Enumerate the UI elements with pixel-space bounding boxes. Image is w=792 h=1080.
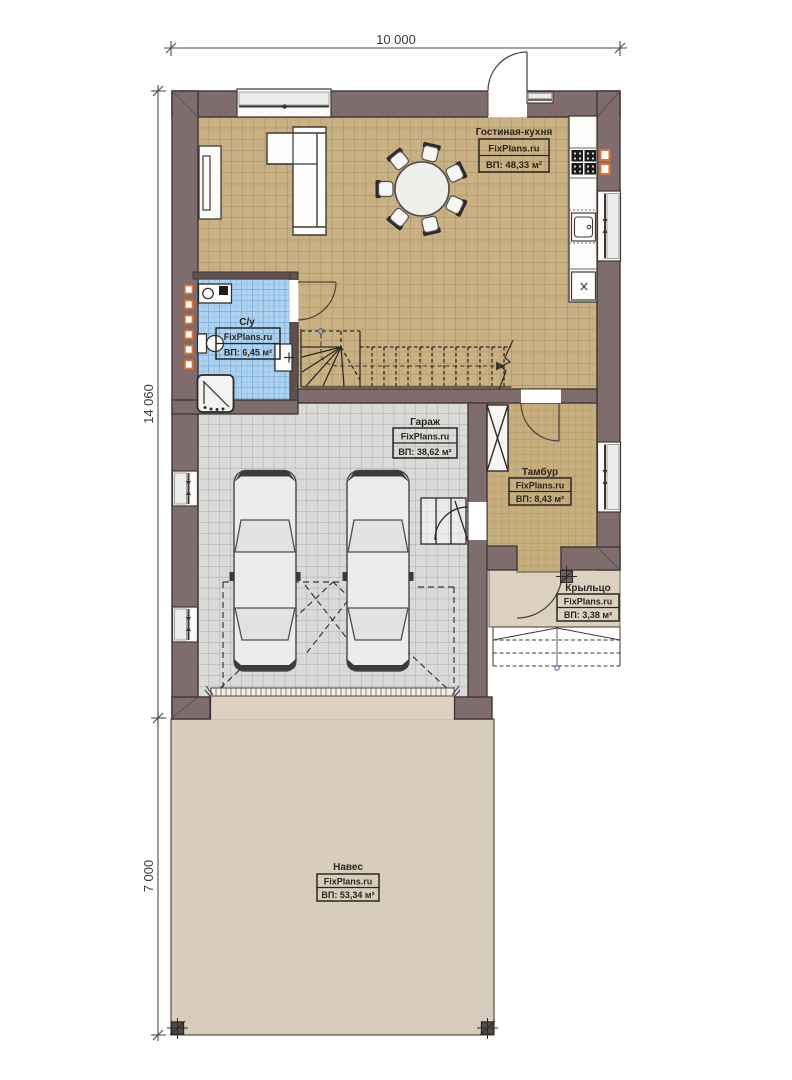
svg-text:7 000: 7 000 [141, 860, 156, 893]
svg-text:FixPlans.ru: FixPlans.ru [401, 432, 450, 442]
svg-text:Навес: Навес [333, 862, 363, 873]
svg-text:10 000: 10 000 [376, 32, 416, 47]
svg-text:ВП: 3,38 м²: ВП: 3,38 м² [564, 610, 612, 620]
svg-text:FixPlans.ru: FixPlans.ru [224, 332, 273, 342]
svg-text:FixPlans.ru: FixPlans.ru [516, 481, 565, 491]
svg-text:С/у: С/у [239, 317, 255, 328]
svg-text:ВП: 38,62 м²: ВП: 38,62 м² [398, 447, 451, 457]
svg-text:Крыльцо: Крыльцо [565, 583, 611, 594]
svg-text:Гараж: Гараж [410, 417, 441, 428]
svg-text:Тамбур: Тамбур [522, 466, 558, 478]
svg-text:ВП: 8,43 м²: ВП: 8,43 м² [516, 494, 564, 504]
svg-text:FixPlans.ru: FixPlans.ru [564, 597, 613, 607]
svg-text:14 060: 14 060 [141, 384, 156, 424]
svg-text:ВП: 53,34 м²: ВП: 53,34 м² [321, 890, 374, 900]
svg-text:Гостиная-кухня: Гостиная-кухня [476, 127, 553, 138]
svg-text:FixPlans.ru: FixPlans.ru [488, 144, 539, 155]
svg-text:ВП: 6,45 м²: ВП: 6,45 м² [224, 348, 272, 358]
svg-text:ВП: 48,33 м²: ВП: 48,33 м² [486, 160, 542, 171]
svg-text:FixPlans.ru: FixPlans.ru [324, 877, 373, 887]
